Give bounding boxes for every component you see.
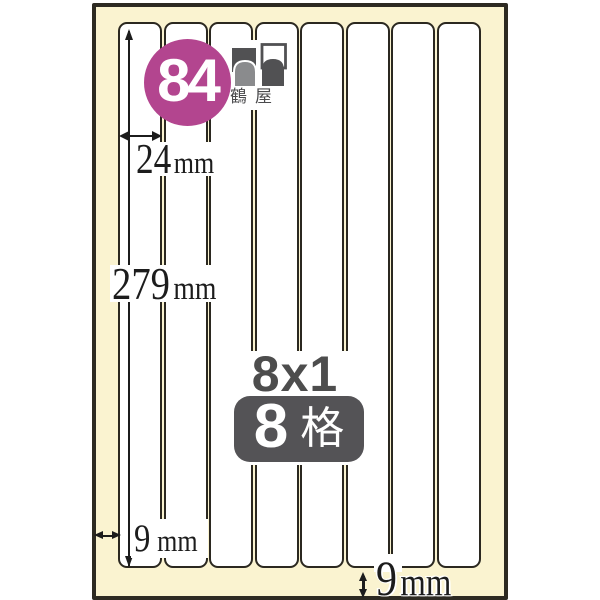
label-strip [391, 22, 435, 568]
label-height-unit: mm [173, 273, 216, 306]
left-margin-arrow-left-icon [94, 531, 103, 539]
product-number: 84 [157, 51, 218, 114]
left-margin-unit: mm [157, 525, 198, 556]
label-strip [437, 22, 481, 568]
bottom-margin-value: 9 [376, 553, 397, 600]
left-margin-arrow-right-icon [112, 531, 121, 539]
bottom-margin-dimension: 9mm [376, 553, 451, 600]
label-height-value: 279 [112, 261, 170, 307]
product-number-circle: 84 [144, 39, 231, 126]
left-margin-value: 9 [134, 519, 150, 558]
label-width-value: 24 [136, 139, 171, 181]
bottom-margin-unit: mm [400, 563, 451, 600]
label-height-dimension: 279mm [112, 261, 216, 307]
grid-layout-label: 8x1 [220, 349, 370, 399]
bottom-margin-arrow-up-icon [359, 572, 367, 581]
cell-count-badge: 8 格 [234, 396, 364, 462]
left-margin-dimension: 9mm [134, 519, 198, 558]
bottom-margin-arrow-down-icon [359, 589, 367, 598]
width-arrow-left-icon [119, 131, 129, 141]
label-strip [300, 22, 344, 568]
cell-count-value: 8 [254, 396, 288, 462]
height-arrow-up-icon [125, 29, 133, 40]
brand-name: 鶴屋 [230, 88, 300, 105]
label-width-dimension: 24mm [136, 139, 214, 181]
brand-logo-icon [231, 43, 287, 88]
cell-count-unit: 格 [300, 407, 344, 451]
product-image: 24mm 279mm 9mm 9mm 8x1 8 格 84 鶴屋 [0, 0, 600, 600]
label-strip [346, 22, 390, 568]
label-width-unit: mm [174, 147, 215, 178]
